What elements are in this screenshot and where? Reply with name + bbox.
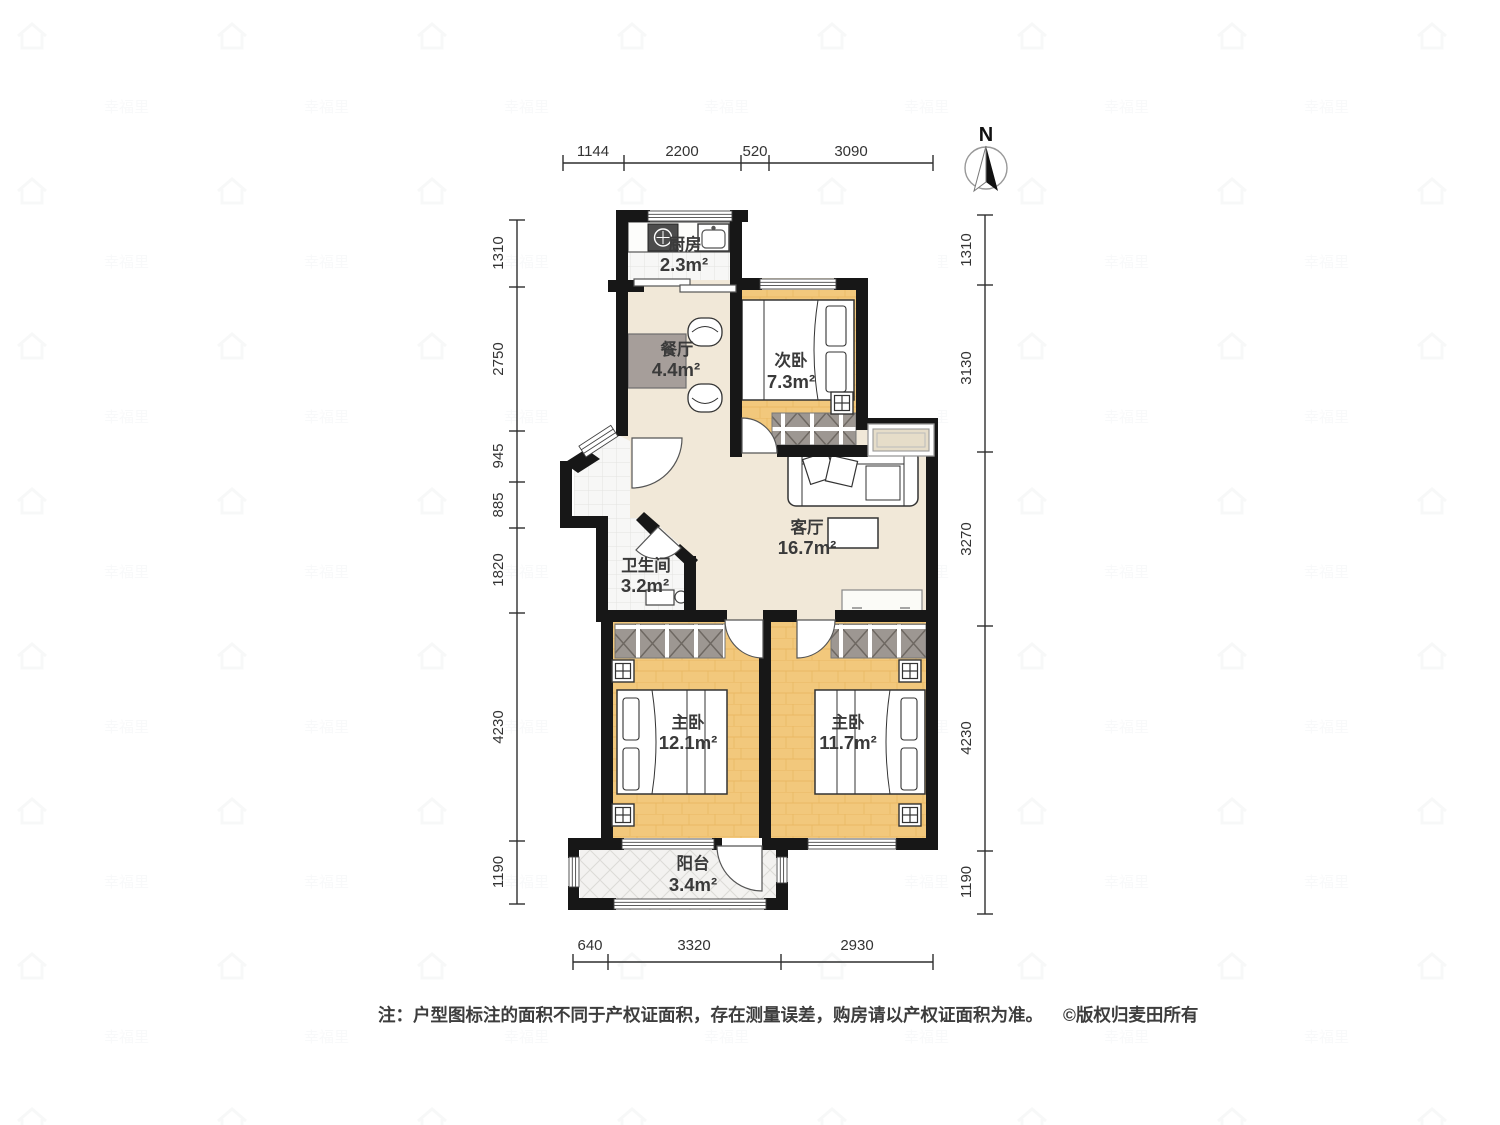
dimension-label: 4230 (490, 710, 507, 743)
sofa (788, 450, 918, 506)
floorplan-note: 注：户型图标注的面积不同于产权证面积，存在测量误差，购房请以产权证面积为准。 (378, 1002, 1043, 1027)
dimension-label: 2200 (665, 143, 698, 160)
living-area: 16.7m² (778, 537, 837, 558)
dimension-label: 3270 (958, 522, 975, 555)
dimension-label: 1144 (577, 143, 609, 160)
dining-chair (688, 384, 722, 412)
bay-window (868, 424, 934, 456)
kitchen-label: 厨房 (669, 234, 702, 254)
balcony-label: 阳台 (677, 853, 710, 873)
sink-icon (698, 224, 729, 251)
north-label: N (979, 124, 993, 146)
bedroom2-window (760, 279, 836, 289)
ac-unit-icon (612, 804, 634, 826)
footer: 注：户型图标注的面积不同于产权证面积，存在测量误差，购房请以产权证面积为准。 ©… (378, 1002, 1198, 1027)
dimension-label: 640 (577, 937, 602, 954)
master-left-label: 主卧 (672, 712, 706, 732)
kitchen-area: 2.3m² (660, 254, 708, 275)
dimension-label: 3130 (958, 351, 975, 384)
master-right-area: 11.7m² (819, 732, 877, 753)
dimension-label: 4230 (958, 721, 975, 754)
dimension-label: 3320 (677, 937, 710, 954)
master-right-wardrobe (831, 624, 926, 658)
dimension-label: 885 (490, 492, 507, 517)
kitchen-window (648, 211, 732, 221)
balcony-bottom-window (614, 899, 766, 909)
bedroom2-area: 7.3m² (767, 371, 815, 392)
bathroom-area: 3.2m² (621, 575, 669, 596)
balcony-left-window (569, 857, 579, 887)
ac-unit-icon (899, 804, 921, 826)
dimension-label: 1190 (490, 856, 507, 888)
dining-label: 餐厅 (661, 339, 695, 359)
dimension-label: 2930 (840, 937, 873, 954)
master-left-window (622, 839, 714, 849)
master-right-label: 主卧 (832, 712, 866, 732)
floorplan-page: 幸福里 (0, 0, 1500, 1125)
bathroom-label: 卫生间 (621, 555, 671, 575)
living-label: 客厅 (790, 517, 825, 537)
bedroom2-label: 次卧 (775, 350, 809, 370)
dimension-label: 945 (490, 443, 507, 468)
balcony-right-window (777, 857, 787, 883)
dimension-label: 1310 (490, 236, 507, 269)
dimension-label: 1310 (958, 233, 975, 266)
master-left-area: 12.1m² (659, 732, 718, 753)
master-left-wardrobe (615, 624, 725, 658)
ac-unit-icon (612, 660, 634, 682)
dimension-label: 1190 (958, 866, 975, 898)
copyright-text: ©版权归麦田所有 (1063, 1002, 1198, 1027)
sofa-pillow (825, 455, 857, 486)
balcony-area: 3.4m² (669, 874, 717, 895)
ac-unit-icon (899, 660, 921, 682)
master-right-window (808, 839, 896, 849)
dimension-label: 2750 (490, 342, 507, 375)
dining-area: 4.4m² (652, 359, 700, 380)
dimension-label: 1820 (490, 553, 507, 586)
bedroom2-wardrobe (772, 413, 856, 445)
dimension-label: 520 (742, 143, 767, 160)
floorplan-svg: 幸福里 (0, 0, 1500, 1125)
dimension-label: 3090 (834, 143, 867, 160)
ac-unit-icon (831, 392, 853, 414)
